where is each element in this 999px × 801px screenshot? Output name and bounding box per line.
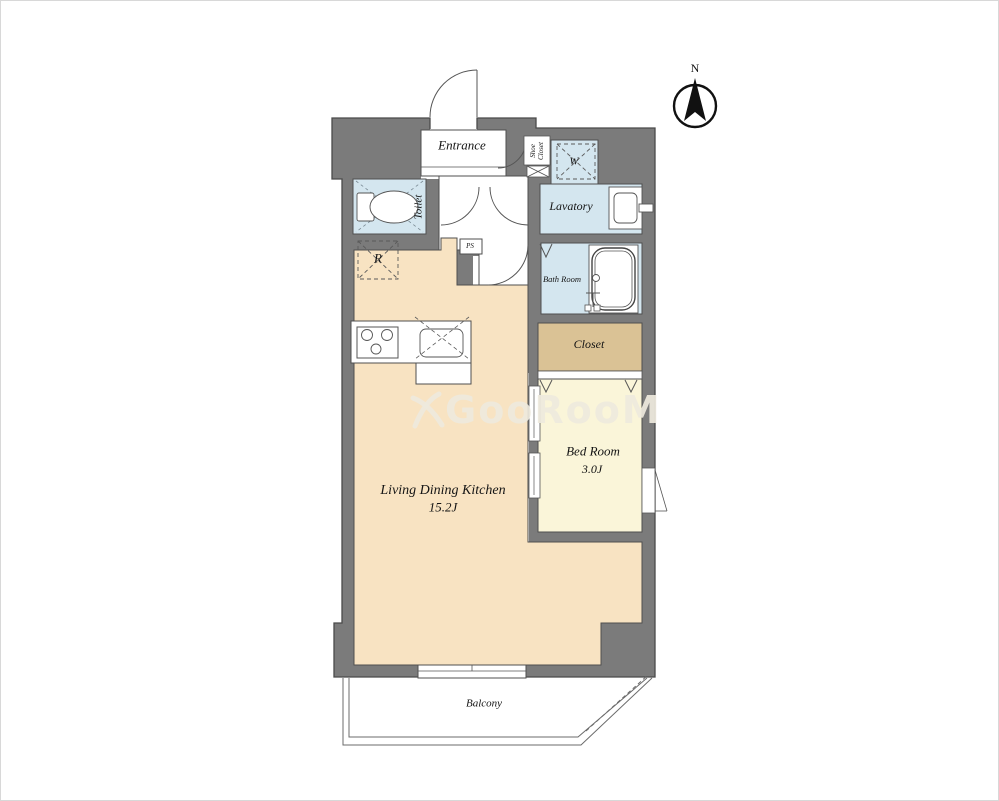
sink-faucet — [639, 204, 653, 212]
toilet-bowl — [370, 191, 418, 223]
wall-bottom-right-block — [601, 623, 655, 677]
floor-plan-canvas: Entrance Shoe Closet W Toilet Lavatory P… — [0, 0, 999, 801]
wall-bath-closet — [528, 314, 651, 323]
entrance-label: Entrance — [438, 139, 486, 154]
bedroom-label: Bed Room — [566, 445, 620, 460]
kitchen-sink — [420, 329, 463, 357]
balcony-sliding-window — [418, 665, 526, 678]
bedroom-size-label: 3.0J — [582, 463, 602, 477]
shoe-closet-label: Shoe Closet — [529, 142, 545, 160]
wall-top-door-left — [421, 118, 430, 130]
toilet-label: Toilet — [413, 195, 426, 220]
ps-label: PS — [466, 242, 474, 250]
closet-door-track — [538, 371, 642, 379]
closet-label: Closet — [574, 338, 605, 352]
wall-ps-stub — [457, 256, 473, 285]
bathtub-unit — [585, 245, 638, 313]
bedroom-window — [642, 468, 667, 513]
kitchen-counter-return — [416, 363, 471, 384]
wall-closet-left — [528, 323, 538, 373]
bathtub-inner — [595, 251, 632, 307]
wall-bedroom-bottom — [529, 532, 655, 542]
wall-central — [528, 184, 541, 323]
watermark-text: GooRooM — [445, 388, 662, 432]
fridge-label: R — [374, 252, 382, 267]
entrance-door-arc — [430, 70, 477, 117]
wall-lavatory-bath — [528, 234, 651, 243]
washer-label: W — [569, 156, 578, 169]
lavatory-label: Lavatory — [549, 200, 592, 214]
ldk-size-label: 15.2J — [429, 501, 458, 516]
ldk-label: Living Dining Kitchen — [380, 483, 505, 499]
compass — [674, 78, 716, 127]
wall-top-left-block — [332, 118, 421, 179]
bathtub-knob — [593, 275, 600, 282]
bath-label: Bath Room — [543, 275, 581, 285]
compass-n-label: N — [691, 62, 700, 76]
balcony-label: Balcony — [466, 698, 502, 711]
